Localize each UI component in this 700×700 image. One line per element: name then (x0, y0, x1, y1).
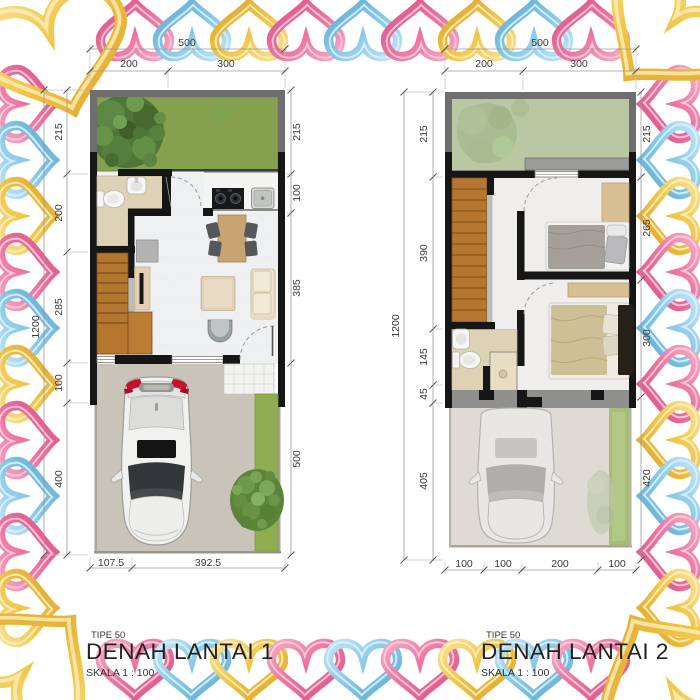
svg-text:145: 145 (418, 348, 430, 366)
svg-text:DENAH LANTAI 2: DENAH LANTAI 2 (481, 639, 669, 664)
svg-text:285: 285 (53, 298, 65, 316)
svg-text:392.5: 392.5 (195, 557, 221, 569)
svg-text:200: 200 (120, 58, 138, 70)
svg-text:100: 100 (608, 558, 626, 570)
svg-text:215: 215 (291, 123, 303, 141)
svg-text:100: 100 (455, 558, 473, 570)
svg-text:1200: 1200 (390, 314, 402, 338)
svg-text:500: 500 (291, 450, 303, 468)
svg-text:420: 420 (641, 469, 653, 487)
svg-text:100: 100 (291, 184, 303, 202)
svg-text:200: 200 (475, 58, 493, 70)
svg-text:215: 215 (418, 125, 430, 143)
svg-text:500: 500 (178, 37, 196, 49)
svg-text:300: 300 (217, 58, 235, 70)
svg-text:SKALA 1 : 100: SKALA 1 : 100 (86, 667, 154, 679)
svg-text:215: 215 (53, 123, 65, 141)
svg-text:390: 390 (418, 244, 430, 262)
svg-text:100: 100 (53, 374, 65, 392)
svg-text:200: 200 (551, 558, 569, 570)
svg-text:45: 45 (418, 388, 430, 400)
svg-text:SKALA 1 : 100: SKALA 1 : 100 (481, 667, 549, 679)
svg-text:107.5: 107.5 (98, 557, 124, 569)
svg-text:300: 300 (641, 329, 653, 347)
svg-text:400: 400 (53, 470, 65, 488)
svg-text:DENAH LANTAI 1: DENAH LANTAI 1 (86, 639, 274, 664)
svg-text:215: 215 (641, 125, 653, 143)
svg-text:100: 100 (494, 558, 512, 570)
svg-text:265: 265 (641, 219, 653, 237)
svg-text:300: 300 (570, 58, 588, 70)
svg-text:200: 200 (53, 204, 65, 222)
svg-text:405: 405 (418, 472, 430, 490)
svg-text:1200: 1200 (30, 315, 42, 339)
svg-text:500: 500 (531, 37, 549, 49)
svg-text:385: 385 (291, 279, 303, 297)
